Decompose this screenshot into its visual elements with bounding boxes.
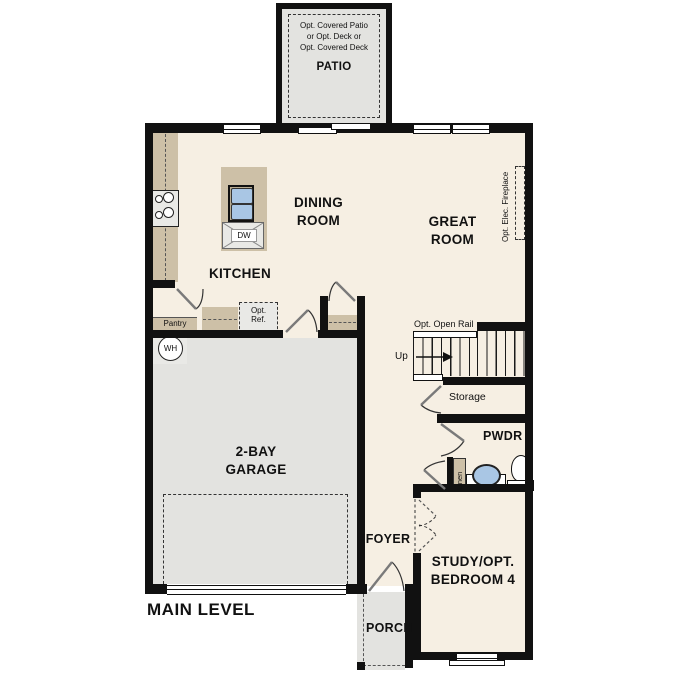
powder-wall-top: [437, 414, 533, 423]
stair-treads: [477, 331, 525, 376]
window: [223, 124, 261, 134]
fireplace-dashed-outline: [515, 166, 525, 240]
linen-label: Linen: [455, 459, 464, 490]
garage-label: 2-BAY GARAGE: [216, 443, 296, 479]
opt-ref-line1: Opt.: [239, 306, 278, 315]
patio-note-line1: Opt. Covered Patio: [286, 20, 382, 31]
exterior-wall-right: [525, 123, 533, 660]
dining-label-line1: DINING: [280, 194, 357, 212]
great-room-label: GREAT ROOM: [414, 213, 491, 249]
garage-label-line1: 2-BAY: [216, 443, 296, 461]
storage-label: Storage: [449, 391, 486, 403]
fireplace-label: Opt. Elec. Fireplace: [501, 164, 510, 242]
porch-corner-stub: [357, 662, 365, 670]
burner-icon: [163, 192, 174, 203]
great-room-label-line2: ROOM: [414, 231, 491, 249]
garage-wall-bottom-left: [145, 584, 167, 594]
patio-wall-right: [386, 3, 392, 123]
burner-icon: [155, 211, 163, 219]
window-sill: [449, 660, 505, 666]
counter-dashed-line: [203, 319, 237, 320]
porch-dashed-edge: [363, 665, 405, 666]
up-label: Up: [395, 351, 408, 362]
patio-note-line3: Opt. Covered Deck: [286, 42, 382, 53]
garage-wall-right: [357, 296, 365, 592]
dishwasher-label: DW: [231, 229, 257, 242]
garage-door: [167, 585, 346, 595]
window: [413, 124, 451, 134]
opt-ref-label: Opt. Ref.: [239, 306, 278, 324]
sink-basin: [231, 204, 253, 220]
water-heater-label: WH: [164, 344, 177, 353]
powder-label: PWDR: [483, 429, 522, 443]
stairs-wall-top: [477, 322, 533, 331]
stair-rail-bottom: [413, 374, 443, 381]
closet-shelf: [328, 315, 357, 331]
window: [452, 124, 490, 134]
study-label: STUDY/OPT. BEDROOM 4: [421, 553, 525, 589]
linen-wall: [447, 457, 453, 492]
patio-note-line2: or Opt. Deck or: [286, 31, 382, 42]
patio-wall-top: [276, 3, 392, 9]
exterior-wall-left: [145, 123, 153, 592]
garage-door-dashed-zone: [163, 494, 348, 584]
burner-icon: [163, 207, 174, 218]
dining-label: DINING ROOM: [280, 194, 357, 230]
kitchen-wall-bottom-left: [145, 330, 283, 338]
stair-treads: [413, 338, 477, 376]
garage-label-line2: GARAGE: [216, 461, 296, 479]
dining-label-line2: ROOM: [280, 212, 357, 230]
porch-dashed-edge: [363, 594, 364, 666]
water-heater: WH: [158, 336, 183, 361]
study-label-line2: BEDROOM 4: [421, 571, 525, 589]
sliding-door-panel: [331, 123, 371, 130]
patio-note: Opt. Covered Patio or Opt. Deck or Opt. …: [286, 20, 382, 53]
great-room-label-line1: GREAT: [414, 213, 491, 231]
study-wall-top: [413, 484, 533, 492]
pantry-wall-top: [145, 280, 175, 288]
porch-label: PORCH: [366, 621, 410, 635]
burner-icon: [155, 195, 163, 203]
closet-wall-left: [320, 296, 328, 338]
pantry-label: Pantry: [153, 319, 197, 328]
doorway-opening: [283, 330, 318, 338]
study-wall-left-lower: [413, 553, 421, 660]
kitchen-label: KITCHEN: [205, 265, 275, 283]
floor-plan: Opt. Covered Patio or Opt. Deck or Opt. …: [0, 0, 687, 687]
sink-basin: [231, 188, 253, 204]
opt-ref-line2: Ref.: [239, 315, 278, 324]
stair-rail-top: [413, 331, 477, 338]
island-sink: [228, 185, 254, 222]
level-title: MAIN LEVEL: [147, 600, 255, 620]
study-label-line1: STUDY/OPT.: [421, 553, 525, 571]
stairs-wall-bottom: [443, 377, 533, 385]
patio-label: PATIO: [286, 61, 382, 73]
patio-wall-left: [276, 3, 282, 123]
open-rail-label: Opt. Open Rail: [414, 319, 474, 329]
french-door-opening: [413, 498, 421, 553]
closet-shelf-dashed-line: [329, 322, 356, 323]
foyer-label: FOYER: [365, 532, 411, 546]
